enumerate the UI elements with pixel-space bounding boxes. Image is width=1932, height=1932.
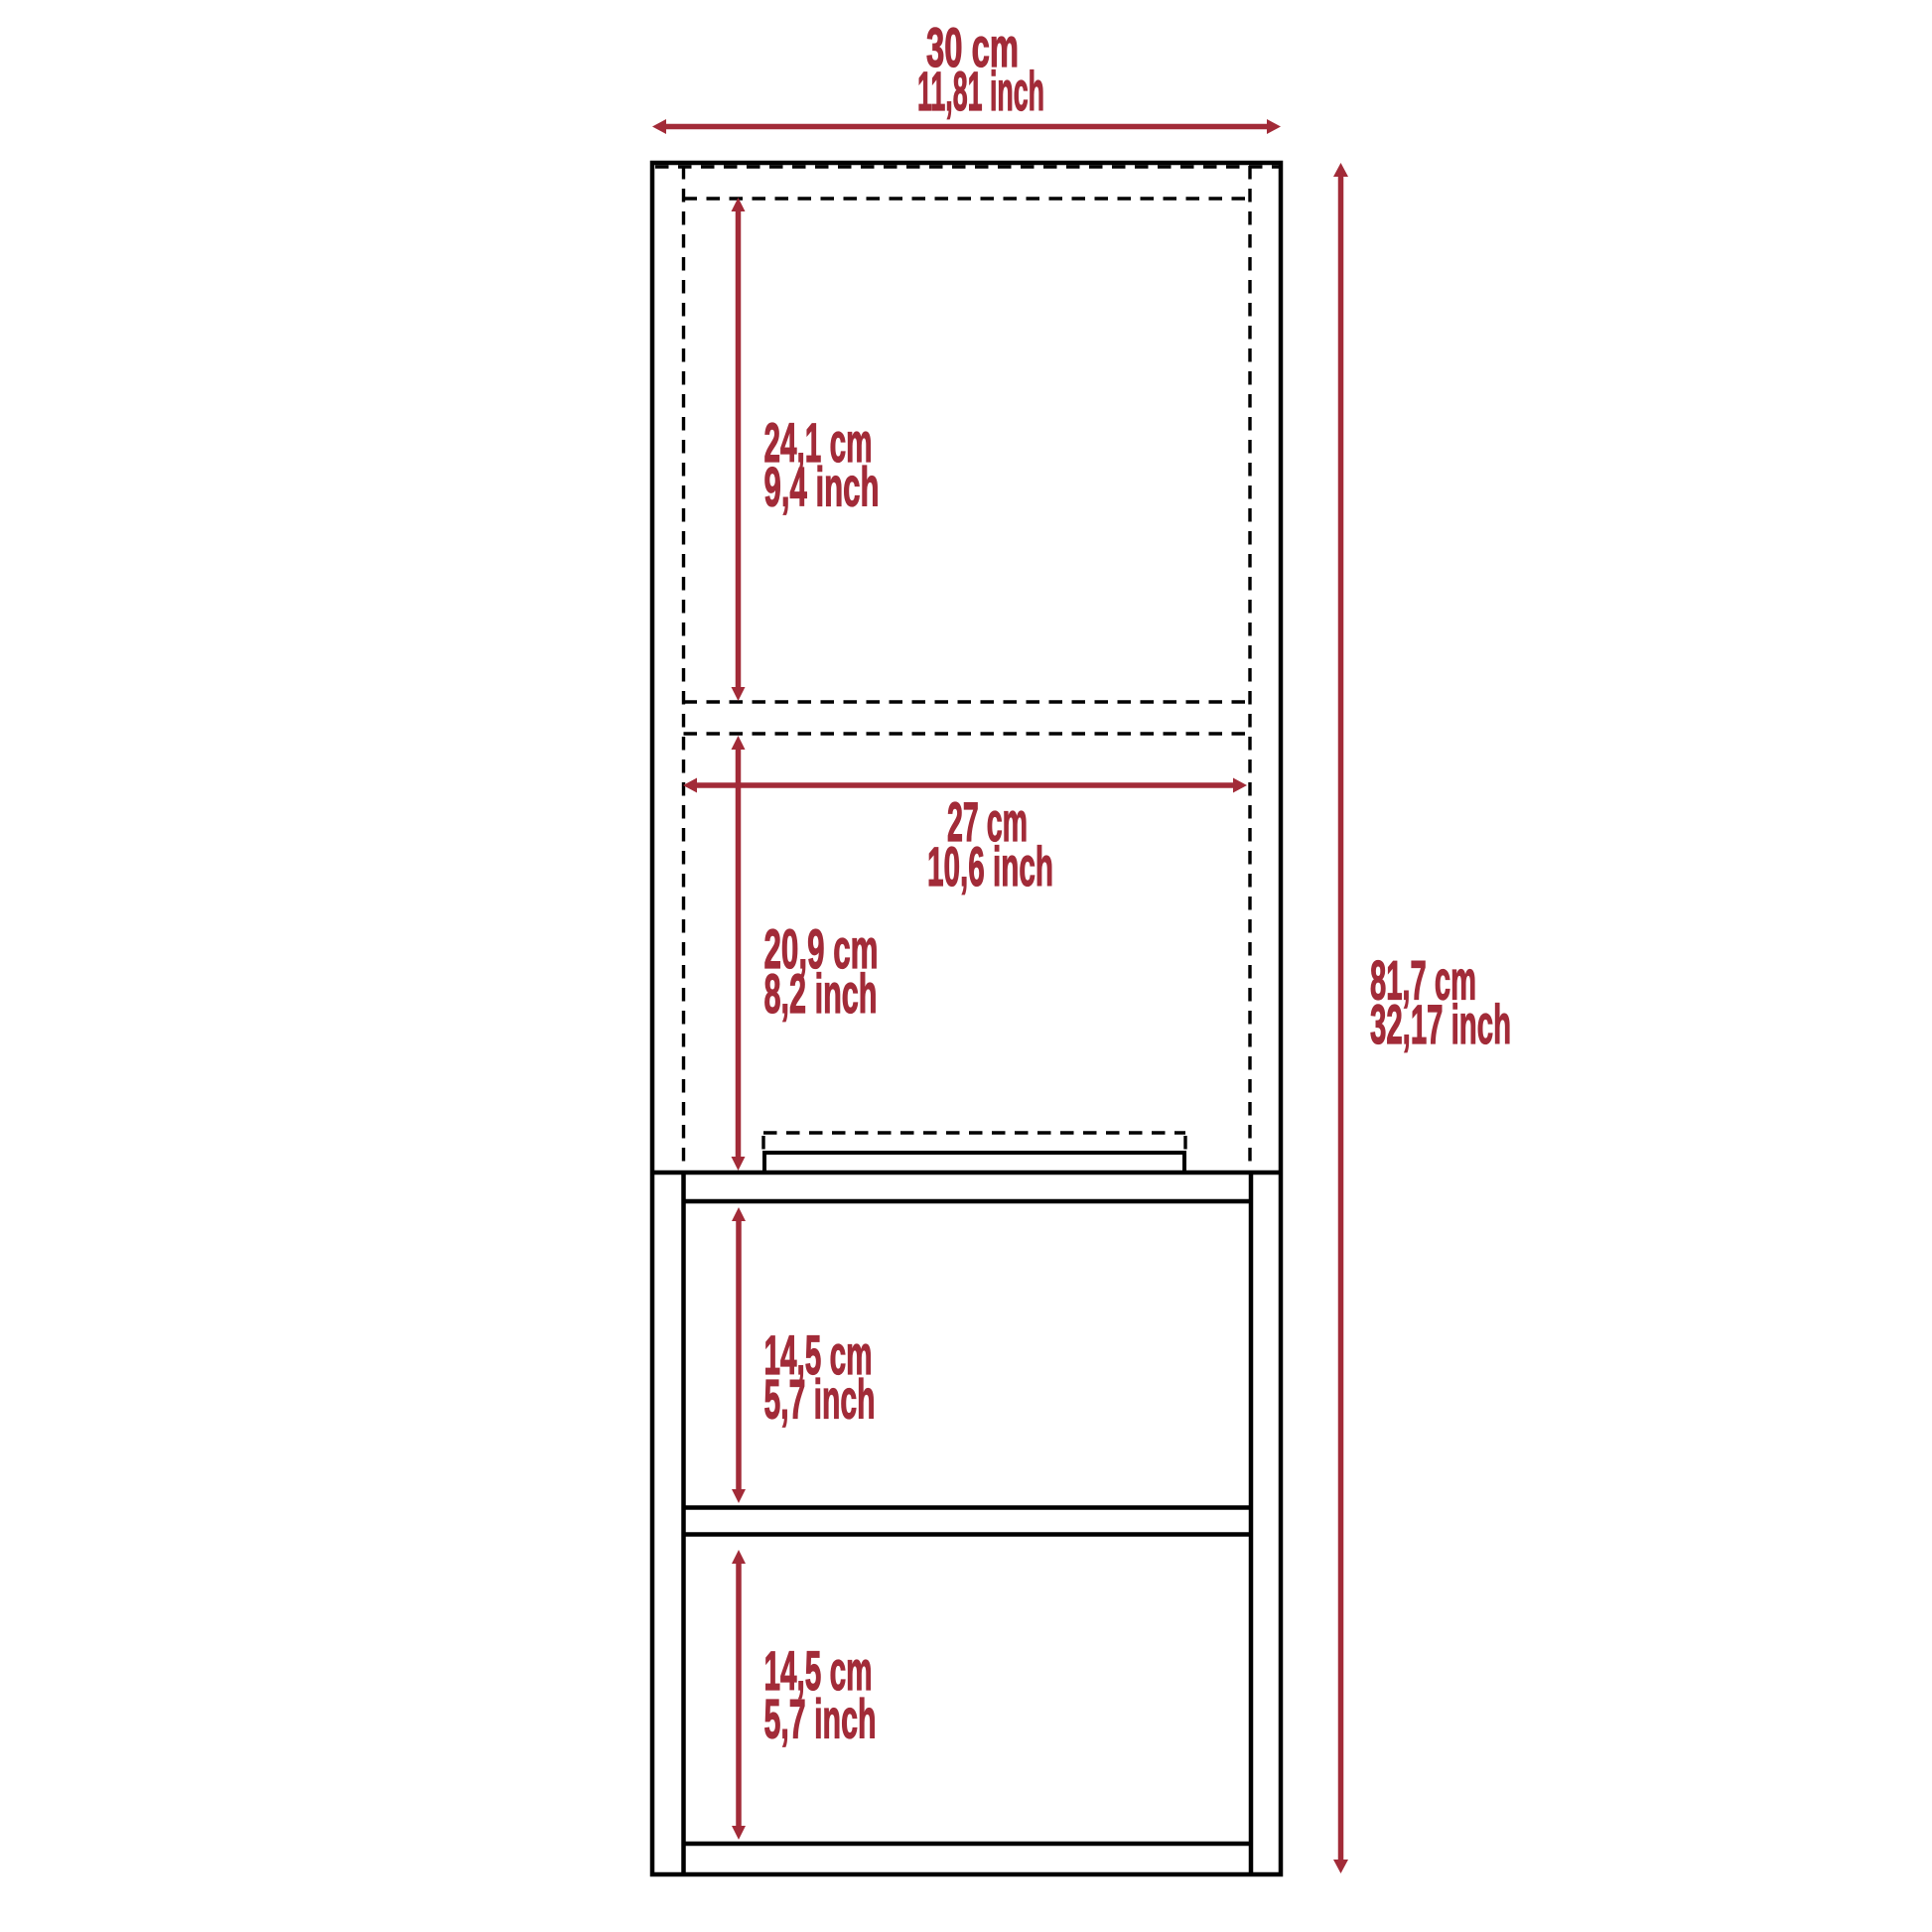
svg-text:8,2 inch: 8,2 inch	[764, 962, 878, 1025]
svg-text:32,17 inch: 32,17 inch	[1370, 993, 1511, 1055]
svg-text:5,7 inch: 5,7 inch	[764, 1688, 877, 1750]
svg-text:10,6 inch: 10,6 inch	[927, 835, 1053, 897]
svg-text:11,81 inch: 11,81 inch	[917, 60, 1044, 122]
svg-text:9,4 inch: 9,4 inch	[764, 456, 880, 518]
svg-text:5,7 inch: 5,7 inch	[764, 1368, 876, 1431]
